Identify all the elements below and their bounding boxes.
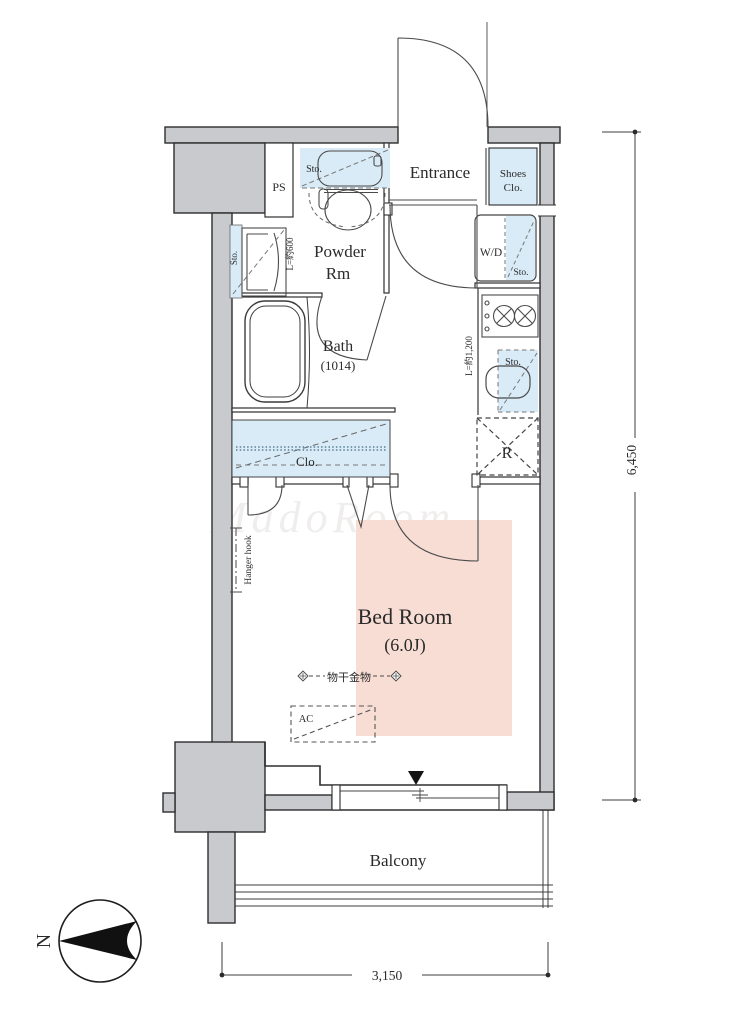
right-wall-window <box>538 205 556 216</box>
label-pipe-space: PS <box>272 180 285 194</box>
column-bottom-left <box>175 742 265 832</box>
wall-top-right-band <box>488 127 560 143</box>
compass-north-label: N <box>33 934 55 948</box>
label-laundry-fixture: 物干金物 <box>327 670 371 684</box>
wall-top-left-block <box>174 143 265 213</box>
floor-plan-drawing: MadoRoom <box>0 0 746 1024</box>
stove <box>482 295 538 337</box>
label-bedroom-size: (6.0J) <box>384 635 426 656</box>
bedroom-step-outline <box>265 742 332 785</box>
label-shoes-closet-1: Shoes <box>500 168 526 180</box>
washing-machine-pan <box>242 228 286 296</box>
wall-balcony-left <box>265 795 332 810</box>
compass: N <box>33 900 141 982</box>
balcony-window <box>332 771 507 810</box>
label-refrigerator: R <box>502 445 513 462</box>
label-entrance: Entrance <box>410 163 470 182</box>
label-kitchen-storage: Sto. <box>505 357 521 368</box>
powder-door-swing <box>309 193 385 227</box>
label-washer-storage: Sto. <box>229 251 239 265</box>
bathtub <box>245 297 310 408</box>
dimension-vertical-label: 6,450 <box>624 445 639 476</box>
entrance-door-swing <box>398 38 488 127</box>
label-powder-room-2: Rm <box>326 264 351 283</box>
wall-kitchen-top <box>475 283 540 288</box>
label-ac-unit: AC <box>299 714 314 725</box>
floor-plan-page: MadoRoom <box>0 0 746 1024</box>
label-balcony: Balcony <box>370 851 427 870</box>
column-bottom-stem <box>208 832 235 923</box>
wall-balcony-right <box>507 792 554 810</box>
label-closet: Clo. <box>296 454 318 469</box>
entrance-step <box>389 200 477 205</box>
wall-bath-bottom <box>232 408 395 412</box>
label-kitchen-width: L=約1,200 <box>463 336 474 376</box>
hall-door-swing <box>390 205 477 288</box>
label-wd-storage: Sto. <box>513 268 528 278</box>
wall-left-column <box>212 213 232 743</box>
label-powder-room-1: Powder <box>314 242 366 261</box>
label-washer-dryer: W/D <box>480 247 502 259</box>
label-bedroom: Bed Room <box>358 604 453 629</box>
wall-top-left-band <box>165 127 398 143</box>
label-shoes-closet-2: Clo. <box>504 182 523 194</box>
label-hanger-hook: Hanger hook <box>244 535 254 585</box>
label-toilet-storage: Sto. <box>306 164 322 175</box>
wall-bedroom-top-2 <box>282 477 347 484</box>
label-washer-width: L=約600 <box>284 237 295 271</box>
dimension-horizontal-label: 3,150 <box>372 968 403 983</box>
column-left-arm <box>163 793 175 812</box>
window-marker-triangle <box>408 771 424 785</box>
label-bath: Bath <box>323 338 353 355</box>
wall-right <box>540 143 554 810</box>
label-bath-size: (1014) <box>321 358 356 373</box>
wall-bedroom-top-4 <box>477 477 540 484</box>
